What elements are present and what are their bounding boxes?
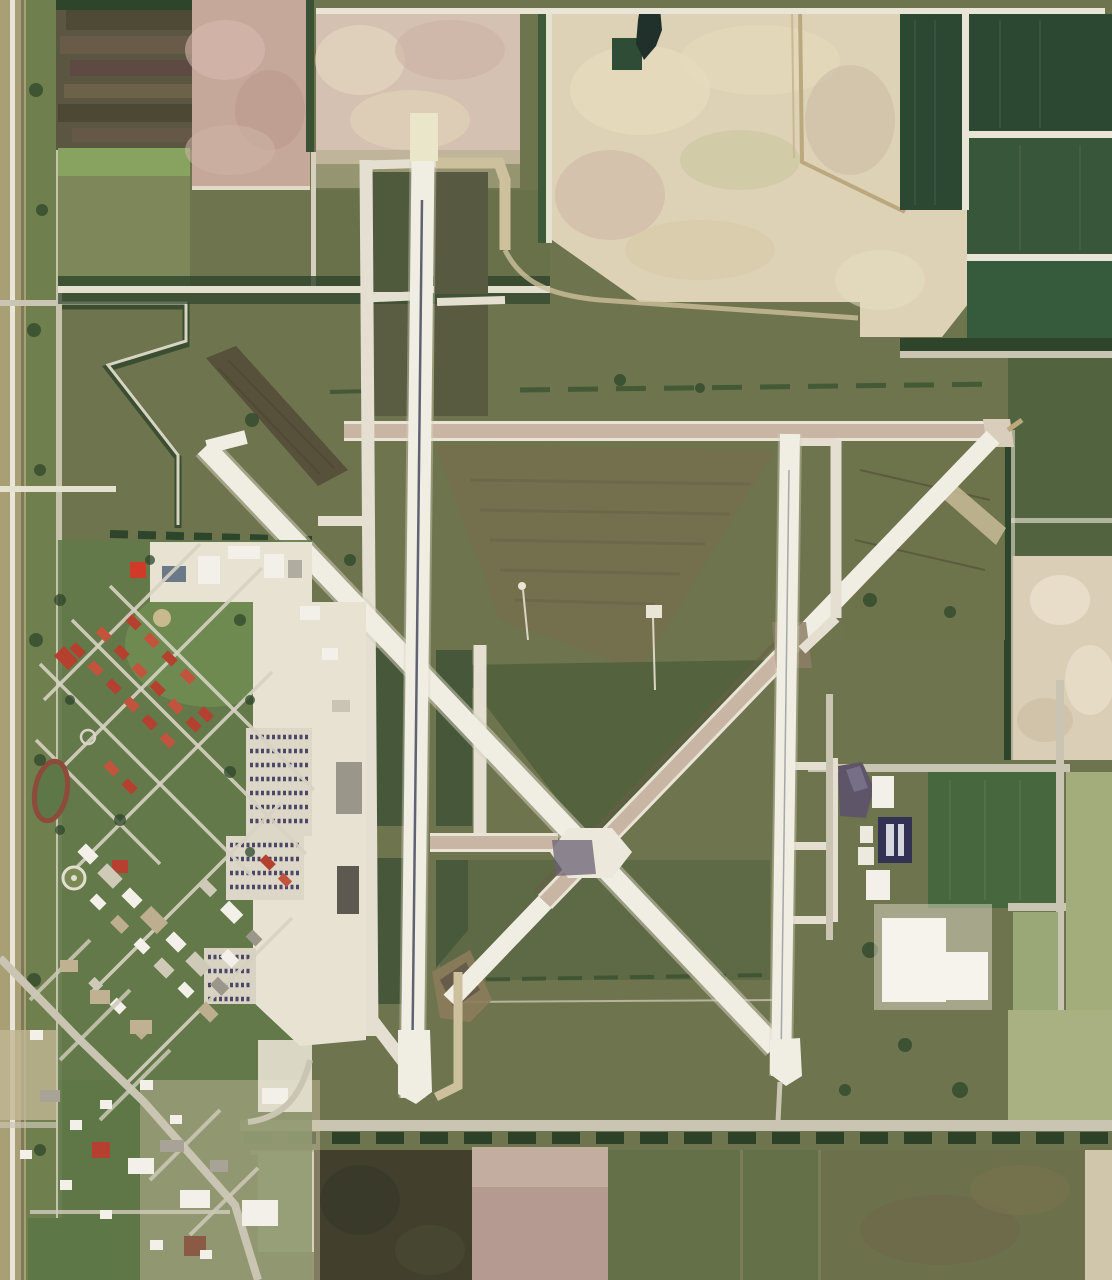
satellite-map[interactable] [0, 0, 1112, 1280]
warehouse [874, 904, 992, 1010]
baseball-diamond [153, 609, 171, 627]
helipad [63, 867, 85, 889]
north-apron [130, 542, 312, 602]
